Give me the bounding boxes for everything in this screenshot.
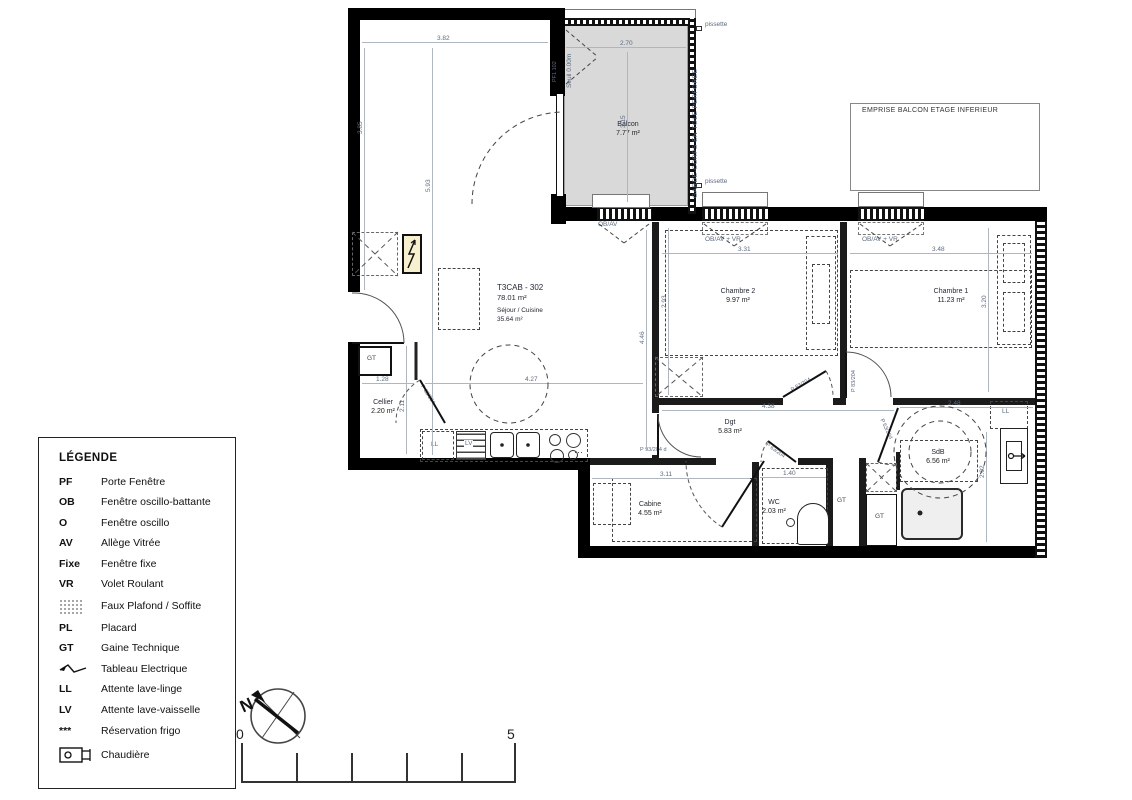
legend-abbr: AV [59, 537, 101, 549]
window-swing [860, 224, 890, 246]
legend-abbr: Fixe [59, 558, 101, 570]
scale-tick [241, 743, 243, 783]
boiler-swatch [59, 745, 93, 765]
shower-drain [918, 511, 923, 516]
legend-panel: LÉGENDE PFPorte Fenêtre OBFenêtre oscill… [38, 437, 236, 789]
balcony-door-swing [472, 112, 562, 204]
legend-abbr: OB [59, 496, 101, 508]
legend-label: Tableau Electrique [101, 663, 187, 675]
scale-end-label: 5 [507, 726, 515, 742]
sdb-door-leaf [878, 408, 898, 462]
legend-row-fixe: FixeFenêtre fixe [59, 557, 235, 570]
dgt-door-arc [658, 414, 701, 457]
compass-needle [255, 699, 298, 733]
legend-title: LÉGENDE [59, 452, 235, 464]
scale-tick [296, 753, 298, 783]
window-swing [734, 224, 766, 246]
legend-label: Chaudière [101, 749, 149, 761]
window-swing [890, 224, 922, 246]
legend-label: Attente lave-vaisselle [101, 704, 200, 716]
legend-label: Fenêtre oscillo-battante [101, 496, 211, 508]
dotted-pattern-icon [59, 599, 101, 614]
scale-tick [406, 753, 408, 783]
legend-abbr: O [59, 517, 101, 529]
legend-label: Placard [101, 622, 137, 634]
sink-drain [526, 443, 530, 447]
floor-plan-page: { "plan": { "unit_code": "T3CAB - 302", … [0, 0, 1132, 800]
chambre2-door-arc [826, 371, 833, 397]
scale-tick [461, 753, 463, 783]
legend-abbr: *** [59, 725, 101, 737]
legend-row-lv: LVAttente lave-vaisselle [59, 704, 235, 717]
legend-row-ob: OBFenêtre oscillo-battante [59, 496, 235, 509]
legend-abbr: PF [59, 476, 101, 488]
north-compass: N [238, 678, 320, 756]
legend-row-tableau: Tableau Electrique [59, 662, 235, 675]
balcony-window-swing [566, 57, 598, 84]
legend-row-chaudiere: Chaudière [59, 745, 235, 765]
scale-start-label: 0 [236, 726, 244, 742]
legend-abbr: LL [59, 683, 101, 695]
legend-label: Attente lave-linge [101, 683, 182, 695]
legend-row-vr: VRVolet Roulant [59, 578, 235, 591]
legend-row-ll: LLAttente lave-linge [59, 683, 235, 696]
cabine-door-arc [686, 461, 722, 527]
boiler-circle [1009, 454, 1014, 459]
wc-door-arc [761, 441, 768, 462]
zigzag-icon [59, 663, 101, 675]
legend-row-o: OFenêtre oscillo [59, 516, 235, 529]
boiler-arrow [1014, 453, 1025, 459]
window-swing [624, 224, 649, 243]
zigzag-swatch [59, 663, 89, 675]
boiler-icon [59, 745, 101, 765]
scale-tick [514, 743, 516, 783]
cellier-door-leaf [420, 380, 445, 423]
electric-zigzag-icon [408, 240, 415, 268]
legend-label: Faux Plafond / Soffite [101, 600, 201, 612]
legend-row-gt: GTGaine Technique [59, 642, 235, 655]
window-swing [704, 224, 734, 246]
legend-abbr: GT [59, 642, 101, 654]
cabine-door-leaf [722, 461, 764, 527]
dots-swatch [59, 599, 83, 614]
legend-abbr: PL [59, 622, 101, 634]
legend-abbr: VR [59, 578, 101, 590]
balcony-window-swing [566, 30, 598, 57]
legend-label: Porte Fenêtre [101, 476, 165, 488]
legend-row-frigo: ***Réservation frigo [59, 724, 235, 737]
legend-row-pl: PLPlacard [59, 621, 235, 634]
legend-label: Allège Vitrée [101, 537, 160, 549]
sink-drain [500, 443, 504, 447]
legend-label: Réservation frigo [101, 725, 180, 737]
legend-abbr: LV [59, 704, 101, 716]
scale-baseline [241, 781, 516, 783]
turning-circle-sdb-outer [894, 406, 986, 498]
legend-rows: PFPorte Fenêtre OBFenêtre oscillo-battan… [59, 475, 235, 765]
turning-circle-sejour [470, 345, 548, 423]
cellier-door-arc [396, 380, 420, 423]
legend-label: Fenêtre oscillo [101, 517, 169, 529]
chambre2-door-leaf [783, 371, 826, 397]
legend-label: Gaine Technique [101, 642, 180, 654]
window-swing [599, 224, 624, 243]
legend-label: Fenêtre fixe [101, 558, 156, 570]
compass-cross-line [262, 692, 294, 738]
legend-row-av: AVAllège Vitrée [59, 537, 235, 550]
turning-circle-sdb-inner [909, 421, 971, 483]
entry-door-arc [352, 293, 404, 343]
legend-row-faux-plafond: Faux Plafond / Soffite [59, 599, 235, 614]
scale-tick [351, 753, 353, 783]
wc-door-leaf [768, 441, 796, 462]
legend-label: Volet Roulant [101, 578, 163, 590]
legend-row-pf: PFPorte Fenêtre [59, 475, 235, 488]
chambre1-door-arc [846, 352, 891, 397]
